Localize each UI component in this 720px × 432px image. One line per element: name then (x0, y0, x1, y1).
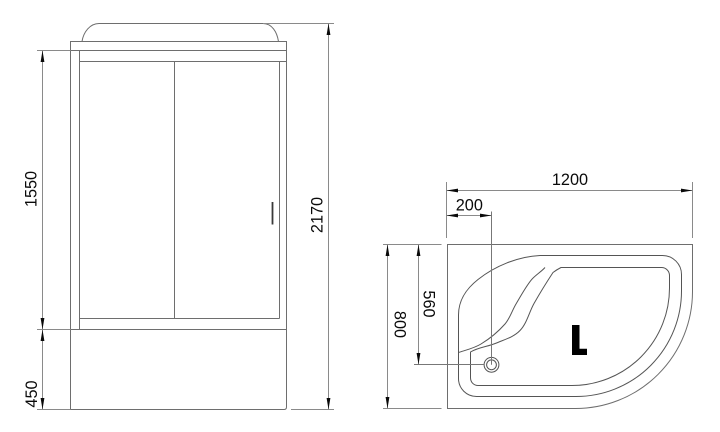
svg-text:450: 450 (23, 380, 41, 407)
svg-text:1200: 1200 (552, 171, 588, 189)
svg-text:800: 800 (391, 311, 409, 338)
svg-text:560: 560 (420, 290, 438, 317)
svg-text:1550: 1550 (23, 171, 41, 207)
svg-text:200: 200 (456, 196, 483, 214)
svg-text:2170: 2170 (308, 197, 326, 233)
